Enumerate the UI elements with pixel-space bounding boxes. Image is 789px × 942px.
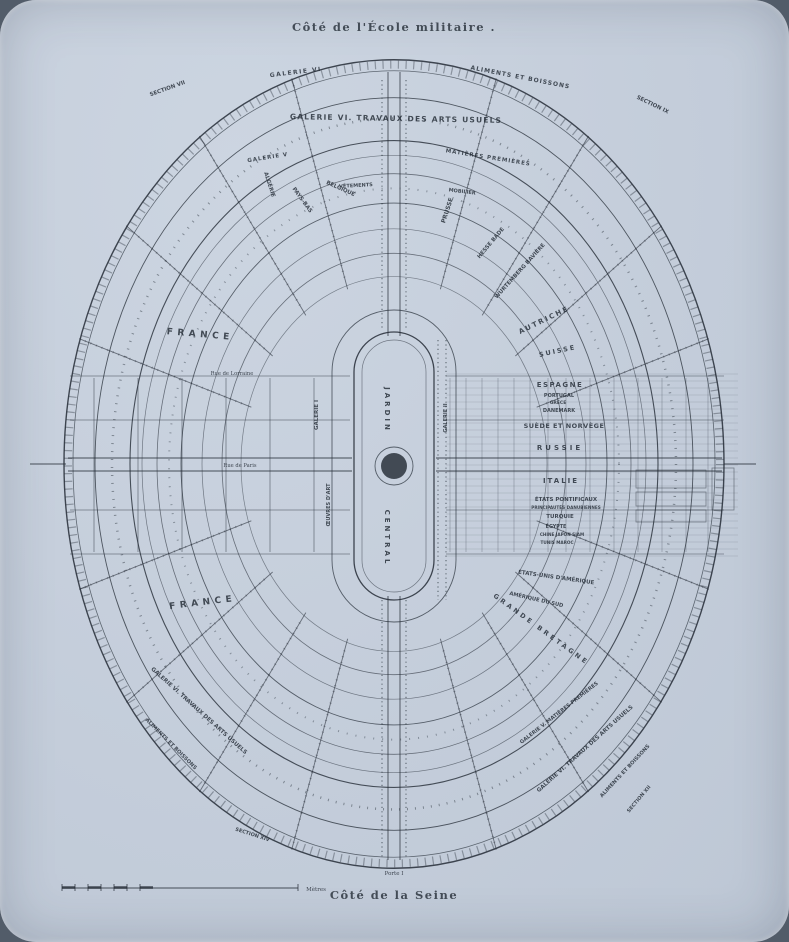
map-label-turquie: TURQUIE <box>546 514 574 520</box>
map-label-etats-unis: ÉTATS-UNIS D'AMÉRIQUE <box>518 568 595 587</box>
map-label-arc-galerie-vi: GALERIE VI <box>269 66 322 79</box>
map-label-arc-galerie-v: GALERIE V <box>247 152 289 164</box>
map-label-autriche: AUTRICHE <box>517 304 570 335</box>
map-label-arc-aliments-sw: ALIMENTS ET BOISSONS <box>144 717 198 771</box>
map-label-prusse: PRUSSE <box>440 197 455 224</box>
map-label-italie: ITALIE <box>543 477 579 485</box>
map-label-rue-de-paris: Rue de Paris <box>223 463 256 469</box>
map-label-jardin: JARDIN <box>383 386 391 433</box>
map-label-principautes-danubiennes: PRINCIPAUTÉS DANUBIENNES <box>531 505 601 510</box>
map-label-porte-i: Porte I <box>385 871 404 877</box>
map-label-scale-metres: Mètres <box>306 886 326 893</box>
map-label-etats-pontificaux: ÉTATS PONTIFICAUX <box>535 495 598 503</box>
map-label-france-nord: FRANCE <box>166 327 234 343</box>
map-label-portugal: PORTUGAL <box>544 393 575 399</box>
exposition-plan-map: Côté de l'École militaire . JARDINCENTRA… <box>0 0 789 942</box>
caption-ecole-militaire: Côté de l'École militaire . <box>292 20 496 34</box>
map-label-arc-section-vii: SECTION VII <box>149 80 186 98</box>
photo-frame: Côté de l'École militaire . JARDINCENTRA… <box>0 0 789 942</box>
scale-bar <box>62 884 298 891</box>
map-label-arc-section-se: SECTION XII <box>626 784 652 814</box>
map-label-arc-travaux-sw: GALERIE VI. TRAVAUX DES ARTS USUELS <box>149 667 247 756</box>
map-label-suede-norvege: SUÈDE ET NORVÈGE <box>524 421 605 430</box>
map-label-galerie-ii: GALERIE II <box>443 403 449 432</box>
map-label-espagne: ESPAGNE <box>537 381 584 389</box>
map-label-suisse: SUISSE <box>538 343 577 359</box>
map-label-danemark: DANEMARK <box>543 408 576 414</box>
map-label-arc-matieres: MATIÈRES PREMIÈRES <box>445 146 531 167</box>
map-label-chine-japon-siam: CHINE JAPON SIAM <box>540 532 584 537</box>
map-label-oeuvres-dart: ŒUVRES D'ART <box>326 483 332 527</box>
map-label-arc-galv-se: GALERIE V. MATIÈRES PREMIÈRES <box>518 679 600 746</box>
map-label-arc-section-ix: SECTION IX <box>635 95 670 116</box>
map-label-tunis-maroc: TUNIS MAROC <box>540 540 573 545</box>
map-label-russie: RUSSIE <box>537 444 583 452</box>
caption-seine: Côté de la Seine <box>330 888 458 902</box>
map-label-arc-travaux-n: GALERIE VI. TRAVAUX DES ARTS USUELS <box>290 112 503 125</box>
map-label-wurtemberg-baviere: WURTEMBERG BAVIÈRE <box>492 241 546 300</box>
map-label-central: CENTRAL <box>383 510 391 567</box>
map-label-rue-de-lorraine: Rue de Lorraine <box>211 371 254 377</box>
map-label-arc-mobilier: MOBILIER <box>448 187 476 196</box>
map-label-galerie-i: GALERIE I <box>314 400 320 430</box>
map-label-egypte: ÉGYPTE <box>546 522 567 530</box>
map-label-france-sud: FRANCE <box>169 594 237 612</box>
